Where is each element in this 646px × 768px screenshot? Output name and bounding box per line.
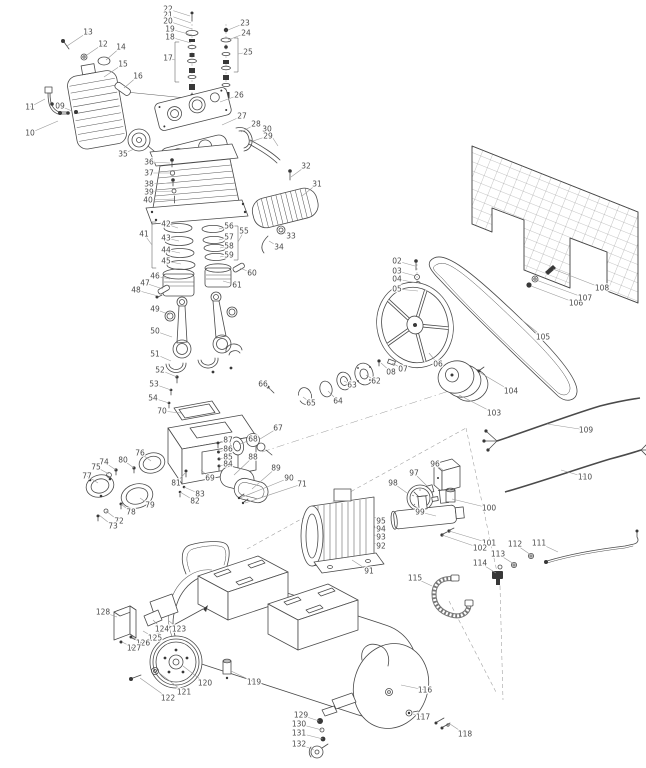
part-number-81: 81 bbox=[171, 478, 181, 487]
part-number-114: 114 bbox=[473, 558, 488, 567]
part-number-65: 65 bbox=[306, 398, 316, 407]
part-number-119: 119 bbox=[247, 677, 262, 686]
part-number-13: 13 bbox=[83, 27, 93, 36]
part-number-113: 113 bbox=[491, 549, 506, 558]
part-number-62: 62 bbox=[371, 376, 381, 385]
part-number-75: 75 bbox=[91, 462, 101, 471]
part-number-82: 82 bbox=[190, 496, 200, 505]
part-number-02: 02 bbox=[392, 256, 402, 265]
part-number-42: 42 bbox=[161, 219, 171, 228]
part-number-53: 53 bbox=[149, 379, 159, 388]
part-number-28: 28 bbox=[251, 119, 261, 128]
part-number-07: 07 bbox=[398, 364, 408, 373]
part-number-77: 77 bbox=[82, 471, 92, 480]
part-number-99: 99 bbox=[415, 507, 425, 516]
part-number-67: 67 bbox=[273, 423, 283, 432]
part-number-103: 103 bbox=[487, 408, 502, 417]
part-number-89: 89 bbox=[271, 463, 281, 472]
part-number-108: 108 bbox=[595, 283, 610, 292]
part-number-129: 129 bbox=[294, 710, 309, 719]
part-number-80: 80 bbox=[118, 455, 128, 464]
part-number-60: 60 bbox=[247, 268, 257, 277]
part-number-52: 52 bbox=[155, 365, 165, 374]
part-number-76: 76 bbox=[135, 448, 145, 457]
part-number-27: 27 bbox=[237, 111, 247, 120]
part-number-117: 117 bbox=[416, 712, 431, 721]
part-number-71: 71 bbox=[297, 479, 307, 488]
part-number-40: 40 bbox=[143, 195, 153, 204]
part-number-32: 32 bbox=[301, 161, 311, 170]
diagram-page: 1312141516110910222120191817232425262728… bbox=[0, 0, 646, 768]
part-number-116: 116 bbox=[418, 685, 433, 694]
part-number-12: 12 bbox=[98, 39, 108, 48]
part-number-17: 17 bbox=[163, 53, 173, 62]
part-number-61: 61 bbox=[232, 280, 242, 289]
part-number-37: 37 bbox=[144, 168, 154, 177]
part-number-45: 45 bbox=[161, 256, 171, 265]
part-number-50: 50 bbox=[150, 326, 160, 335]
part-number-24: 24 bbox=[241, 28, 251, 37]
part-number-25: 25 bbox=[243, 47, 253, 56]
part-number-31: 31 bbox=[312, 179, 322, 188]
part-number-43: 43 bbox=[161, 233, 171, 242]
part-number-124: 124 bbox=[155, 624, 170, 633]
part-number-46: 46 bbox=[150, 271, 160, 280]
part-number-73: 73 bbox=[108, 521, 118, 530]
part-number-93: 93 bbox=[376, 532, 386, 541]
part-number-100: 100 bbox=[482, 503, 497, 512]
part-number-78: 78 bbox=[126, 507, 136, 516]
part-number-107: 107 bbox=[578, 293, 593, 302]
part-number-16: 16 bbox=[133, 71, 143, 80]
exploded-diagram: 1312141516110910222120191817232425262728… bbox=[0, 0, 646, 768]
part-number-44: 44 bbox=[161, 245, 171, 254]
part-number-97: 97 bbox=[409, 468, 419, 477]
part-number-110: 110 bbox=[578, 472, 593, 481]
part-number-104: 104 bbox=[504, 386, 519, 395]
part-number-123: 123 bbox=[172, 624, 187, 633]
part-number-57: 57 bbox=[224, 232, 234, 241]
part-number-06: 06 bbox=[433, 359, 443, 368]
part-number-49: 49 bbox=[150, 304, 160, 313]
part-number-55: 55 bbox=[239, 226, 249, 235]
wheel bbox=[150, 636, 202, 688]
part-number-29: 29 bbox=[263, 131, 273, 140]
part-number-115: 115 bbox=[408, 573, 423, 582]
part-number-79: 79 bbox=[145, 500, 155, 509]
part-number-54: 54 bbox=[148, 393, 158, 402]
part-number-121: 121 bbox=[177, 687, 192, 696]
part-number-35: 35 bbox=[118, 149, 128, 158]
part-number-112: 112 bbox=[508, 539, 523, 548]
part-number-96: 96 bbox=[430, 459, 440, 468]
part-number-58: 58 bbox=[224, 241, 234, 250]
cylinder-block bbox=[146, 144, 248, 224]
part-number-15: 15 bbox=[118, 59, 128, 68]
part-number-120: 120 bbox=[198, 678, 213, 687]
part-number-05: 05 bbox=[392, 284, 402, 293]
part-number-08: 08 bbox=[386, 367, 396, 376]
part-number-70: 70 bbox=[157, 406, 167, 415]
part-number-102: 102 bbox=[473, 543, 488, 552]
part-number-130: 130 bbox=[292, 719, 307, 728]
part-number-09: 09 bbox=[55, 101, 65, 110]
part-number-36: 36 bbox=[144, 157, 154, 166]
part-number-132: 132 bbox=[292, 739, 307, 748]
part-number-48: 48 bbox=[131, 285, 141, 294]
part-number-56: 56 bbox=[224, 221, 234, 230]
part-number-10: 10 bbox=[25, 128, 35, 137]
part-number-59: 59 bbox=[224, 250, 234, 259]
part-number-26: 26 bbox=[234, 90, 244, 99]
part-number-88: 88 bbox=[248, 452, 258, 461]
part-number-34: 34 bbox=[274, 242, 284, 251]
part-number-23: 23 bbox=[240, 18, 250, 27]
part-number-92: 92 bbox=[376, 541, 386, 550]
part-number-98: 98 bbox=[388, 478, 398, 487]
part-number-90: 90 bbox=[284, 473, 294, 482]
part-number-128: 128 bbox=[96, 607, 111, 616]
part-number-122: 122 bbox=[161, 693, 176, 702]
part-number-11: 11 bbox=[25, 102, 35, 111]
check-valve bbox=[446, 488, 455, 502]
part-number-127: 127 bbox=[127, 643, 142, 652]
part-number-47: 47 bbox=[140, 278, 150, 287]
part-number-109: 109 bbox=[579, 425, 594, 434]
part-number-69: 69 bbox=[205, 473, 215, 482]
part-number-14: 14 bbox=[116, 42, 126, 51]
part-number-87: 87 bbox=[223, 435, 233, 444]
part-number-41: 41 bbox=[139, 229, 149, 238]
part-number-63: 63 bbox=[347, 380, 357, 389]
part-number-91: 91 bbox=[364, 566, 374, 575]
part-number-64: 64 bbox=[333, 396, 343, 405]
aftercooler-nut bbox=[277, 226, 285, 234]
part-number-131: 131 bbox=[292, 728, 307, 737]
part-number-105: 105 bbox=[536, 332, 551, 341]
part-number-51: 51 bbox=[150, 349, 160, 358]
part-number-118: 118 bbox=[458, 729, 473, 738]
part-number-84: 84 bbox=[223, 459, 233, 468]
part-number-04: 04 bbox=[392, 274, 402, 283]
part-number-68: 68 bbox=[248, 434, 258, 443]
part-number-33: 33 bbox=[286, 231, 296, 240]
part-number-18: 18 bbox=[165, 32, 175, 41]
part-number-66: 66 bbox=[258, 379, 268, 388]
part-number-111: 111 bbox=[532, 538, 547, 547]
